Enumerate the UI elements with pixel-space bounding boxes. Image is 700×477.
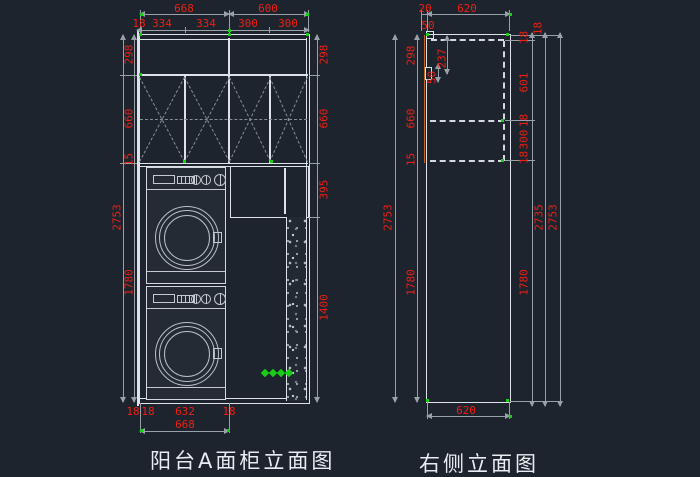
dim-label: 18 [207, 405, 251, 418]
dim-label: 18 [518, 136, 531, 180]
washer-knob [191, 294, 201, 304]
grip-marker [227, 429, 230, 432]
dim-label: 395 [318, 168, 331, 212]
control-panel-line [147, 189, 225, 190]
dim-label: 1400 [318, 286, 331, 330]
grip-marker [140, 429, 143, 432]
drawing-title-left: 阳台A面柜立面图 [150, 445, 335, 477]
drawing-title-right: 右侧立面图 [419, 448, 539, 477]
inner-top-line [140, 39, 307, 40]
grip-marker [140, 13, 143, 16]
side-cabinet-outline [426, 34, 511, 403]
top-cabinet-divider [228, 38, 230, 75]
control-panel-line [147, 308, 225, 309]
dim-label: 15 [405, 138, 418, 182]
washer-knob [214, 174, 226, 186]
dim-label: 668 [163, 418, 207, 431]
grip-marker [426, 399, 429, 402]
grip-marker [306, 13, 309, 16]
washing-machine-1 [146, 167, 226, 284]
dim-label: 298 [123, 33, 136, 77]
grip-marker [228, 33, 231, 36]
hidden-line-mid [430, 120, 504, 122]
dim-label: 660 [123, 97, 136, 141]
dim-label: 334 [140, 17, 184, 30]
grip-marker [509, 415, 512, 418]
grip-marker [506, 399, 509, 402]
ext-line [427, 402, 428, 419]
washer-knob [201, 294, 211, 304]
top-section-divider [139, 74, 308, 76]
door-center-dash [140, 119, 307, 120]
washer-door-glass [164, 331, 210, 377]
washer-bottom-line [147, 271, 225, 272]
dim-label: 298 [405, 34, 418, 78]
dim-line [134, 35, 135, 402]
grip-marker [501, 119, 504, 122]
dim-line [395, 35, 396, 402]
dim-label: 20 [403, 2, 447, 15]
dim-line [560, 33, 561, 406]
dim-label: 300 [266, 17, 310, 30]
grip-marker [506, 33, 509, 36]
grip-marker [306, 33, 309, 36]
grip-marker [228, 29, 231, 32]
shelf-15-top [139, 163, 308, 165]
shelf-box [230, 166, 309, 218]
ext-line [510, 401, 562, 402]
dim-label: 620 [444, 404, 488, 417]
door-latch [213, 348, 222, 359]
ext-line [309, 163, 320, 164]
grip-marker [270, 160, 273, 163]
dim-label: 600 [246, 2, 290, 15]
dim-label: 660 [318, 97, 331, 141]
grip-marker [139, 73, 142, 76]
dim-label: 660 [405, 97, 418, 141]
dim-label: 1780 [518, 261, 531, 305]
dim-label: 15 [123, 138, 136, 182]
washer-knob [201, 175, 211, 185]
dim-line [417, 35, 418, 402]
washing-machine-2 [146, 286, 226, 400]
dim-label: 50 [426, 56, 439, 100]
washer-knob [214, 293, 226, 305]
dim-label: 18 [518, 16, 531, 60]
dim-label: 300 [226, 17, 270, 30]
shelf-divider [284, 168, 286, 214]
grip-marker [501, 159, 504, 162]
ext-line [309, 217, 320, 218]
dim-line [140, 431, 229, 432]
grip-marker [426, 33, 429, 36]
dim-label: 298 [318, 33, 331, 77]
dim-line [137, 30, 309, 31]
washer-knob [191, 175, 201, 185]
dim-label: 1780 [405, 261, 418, 305]
washer-bottom-line [147, 387, 225, 388]
dim-label: 668 [162, 2, 206, 15]
hidden-line-bottom [430, 160, 504, 162]
dim-label: 334 [184, 17, 228, 30]
dim-label: 50 [406, 19, 450, 32]
dim-label: 632 [163, 405, 207, 418]
washer-door-glass [164, 215, 210, 261]
dim-label: 2735 [533, 196, 546, 240]
display-rect [153, 175, 175, 184]
grip-marker [509, 13, 512, 16]
cad-drawing-canvas[interactable]: 668 600 18 334 334 300 300 2753 298 660 … [0, 0, 700, 477]
hidden-line-right [503, 41, 505, 161]
dim-label: 2753 [547, 196, 560, 240]
dim-label: 2753 [382, 196, 395, 240]
dim-label: 2753 [111, 196, 124, 240]
dim-label: 620 [445, 2, 489, 15]
display-rect [153, 294, 175, 303]
grip-marker [183, 160, 186, 163]
dim-label: 18 [532, 7, 545, 51]
door-latch [213, 232, 222, 243]
dim-label: 1780 [123, 261, 136, 305]
grip-marker [139, 33, 142, 36]
dim-line [317, 35, 318, 402]
